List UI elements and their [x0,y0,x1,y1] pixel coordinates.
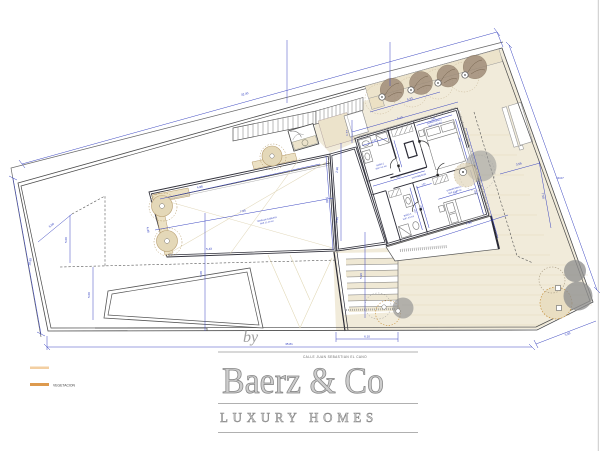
svg-text:VEGETACION: VEGETACION [53,384,76,388]
svg-text:5.38: 5.38 [325,197,329,203]
svg-text:1.46: 1.46 [335,217,339,223]
svg-text:LUXURY HOMES: LUXURY HOMES [220,410,378,425]
svg-text:35.81: 35.81 [285,342,293,346]
svg-text:by: by [243,329,259,346]
svg-text:CALLE JUAN SEBASTIAN EL CANO: CALLE JUAN SEBASTIAN EL CANO [303,355,367,359]
svg-text:1.77: 1.77 [345,130,349,136]
svg-text:6.10: 6.10 [364,335,370,339]
svg-text:2.96: 2.96 [335,167,339,173]
svg-text:5.00: 5.00 [87,292,91,298]
svg-text:5.08: 5.08 [199,271,203,277]
svg-text:19.07: 19.07 [556,176,564,180]
svg-text:5.36: 5.36 [359,273,363,279]
svg-text:5.43: 5.43 [206,247,212,251]
svg-text:5.00: 5.00 [64,237,68,243]
svg-text:Baerz & Co: Baerz & Co [222,361,384,402]
